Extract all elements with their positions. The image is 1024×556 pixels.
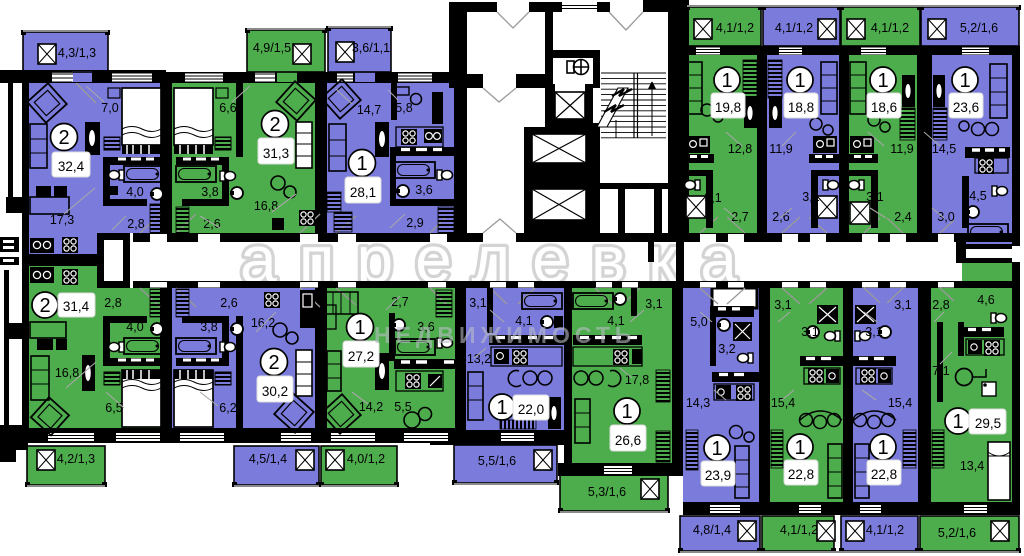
svg-text:3,2: 3,2 <box>718 342 735 356</box>
svg-text:2: 2 <box>58 127 69 149</box>
svg-text:6,2: 6,2 <box>219 401 236 415</box>
svg-text:31,3: 31,3 <box>263 146 289 161</box>
svg-text:32,4: 32,4 <box>58 159 85 174</box>
svg-text:11,9: 11,9 <box>890 142 913 156</box>
svg-text:2,8: 2,8 <box>127 217 144 231</box>
svg-text:5,2/1,6: 5,2/1,6 <box>938 526 976 540</box>
svg-text:5,3/1,6: 5,3/1,6 <box>588 485 626 499</box>
svg-text:5,0: 5,0 <box>690 315 707 329</box>
svg-text:4,6: 4,6 <box>977 293 994 307</box>
svg-text:1: 1 <box>356 153 367 175</box>
svg-text:14,2: 14,2 <box>359 400 383 414</box>
svg-text:14,7: 14,7 <box>357 103 381 117</box>
svg-text:2: 2 <box>269 114 280 136</box>
svg-text:5,2/1,6: 5,2/1,6 <box>960 21 998 35</box>
svg-text:23,6: 23,6 <box>953 100 979 115</box>
svg-text:26,6: 26,6 <box>615 433 641 448</box>
svg-text:4,3/1,3: 4,3/1,3 <box>58 46 96 60</box>
svg-text:13,4: 13,4 <box>960 459 984 473</box>
svg-text:7,0: 7,0 <box>101 101 118 115</box>
svg-text:1: 1 <box>711 438 722 460</box>
svg-text:18,8: 18,8 <box>788 100 814 115</box>
svg-text:3,1: 3,1 <box>865 325 882 339</box>
svg-text:29,5: 29,5 <box>975 416 1001 431</box>
svg-text:2,8: 2,8 <box>932 298 949 312</box>
svg-text:3,8: 3,8 <box>201 185 218 199</box>
svg-text:3,1: 3,1 <box>894 298 911 312</box>
svg-text:31,4: 31,4 <box>63 299 90 314</box>
svg-text:23,9: 23,9 <box>705 468 731 483</box>
svg-text:3,1: 3,1 <box>645 297 662 311</box>
svg-text:4,0: 4,0 <box>126 185 143 199</box>
svg-text:14,5: 14,5 <box>932 142 956 156</box>
svg-text:16,2: 16,2 <box>251 316 275 330</box>
svg-text:19,8: 19,8 <box>715 100 741 115</box>
svg-text:3,6: 3,6 <box>415 183 432 197</box>
svg-text:4,0: 4,0 <box>126 320 143 334</box>
svg-text:15,4: 15,4 <box>888 396 912 410</box>
svg-text:22,0: 22,0 <box>518 402 544 417</box>
svg-text:1: 1 <box>794 437 805 459</box>
svg-text:3,1: 3,1 <box>801 325 818 339</box>
svg-text:27,2: 27,2 <box>348 349 374 364</box>
svg-text:14,3: 14,3 <box>686 396 710 410</box>
svg-text:4,5/1,4: 4,5/1,4 <box>249 452 287 466</box>
svg-text:6,5: 6,5 <box>105 401 122 415</box>
svg-text:4,0/1,2: 4,0/1,2 <box>347 452 385 466</box>
svg-text:1: 1 <box>794 70 805 92</box>
svg-text:3,6/1,1: 3,6/1,1 <box>352 41 390 55</box>
svg-text:22,8: 22,8 <box>788 467 814 482</box>
svg-text:7,1: 7,1 <box>932 364 949 378</box>
svg-text:1: 1 <box>877 70 888 92</box>
svg-text:2,8: 2,8 <box>104 296 121 310</box>
svg-text:2,6: 2,6 <box>220 296 237 310</box>
svg-text:2: 2 <box>268 352 279 374</box>
svg-text:4,1/1,2: 4,1/1,2 <box>871 21 909 35</box>
svg-text:1: 1 <box>621 401 632 423</box>
svg-text:1: 1 <box>877 437 888 459</box>
svg-text:4,2/1,3: 4,2/1,3 <box>57 452 95 466</box>
svg-text:1: 1 <box>354 317 365 339</box>
svg-text:3,1: 3,1 <box>774 298 791 312</box>
svg-text:11,9: 11,9 <box>769 142 792 156</box>
svg-text:2,9: 2,9 <box>406 216 423 230</box>
svg-text:4,1/1,2: 4,1/1,2 <box>866 523 904 537</box>
svg-text:17,3: 17,3 <box>50 213 74 227</box>
svg-text:22,8: 22,8 <box>871 467 897 482</box>
svg-text:16,8: 16,8 <box>55 366 79 380</box>
svg-text:4,5: 4,5 <box>969 189 986 203</box>
svg-text:5,8: 5,8 <box>395 101 412 115</box>
svg-text:16,8: 16,8 <box>254 199 278 213</box>
svg-text:НЕДВИЖИМОСТЬ: НЕДВИЖИМОСТЬ <box>374 322 636 348</box>
svg-text:4,9/1,5: 4,9/1,5 <box>253 41 291 55</box>
svg-text:30,2: 30,2 <box>262 384 288 399</box>
svg-text:5,5/1,6: 5,5/1,6 <box>478 454 516 468</box>
svg-text:6,6: 6,6 <box>219 101 236 115</box>
svg-text:3,1: 3,1 <box>866 190 883 204</box>
svg-text:2: 2 <box>39 295 50 317</box>
svg-text:2,7: 2,7 <box>731 210 748 224</box>
svg-text:1: 1 <box>496 397 507 419</box>
svg-text:5,5: 5,5 <box>394 400 411 414</box>
svg-text:4,1/1,2: 4,1/1,2 <box>780 523 818 537</box>
svg-text:4,8/1,4: 4,8/1,4 <box>693 523 731 537</box>
svg-text:3,1: 3,1 <box>704 191 721 205</box>
svg-text:28,1: 28,1 <box>350 185 376 200</box>
svg-text:4,1/1,2: 4,1/1,2 <box>716 21 754 35</box>
svg-text:1: 1 <box>959 70 970 92</box>
svg-text:3,8: 3,8 <box>200 320 217 334</box>
svg-text:3,0: 3,0 <box>937 210 954 224</box>
svg-text:18,6: 18,6 <box>871 100 897 115</box>
svg-text:15,4: 15,4 <box>771 396 795 410</box>
svg-text:3,1: 3,1 <box>469 296 486 310</box>
svg-text:4,1/1,2: 4,1/1,2 <box>775 21 813 35</box>
svg-text:3,1: 3,1 <box>802 190 819 204</box>
svg-text:1: 1 <box>952 411 963 433</box>
svg-text:2,4: 2,4 <box>894 210 911 224</box>
svg-text:1: 1 <box>721 70 732 92</box>
